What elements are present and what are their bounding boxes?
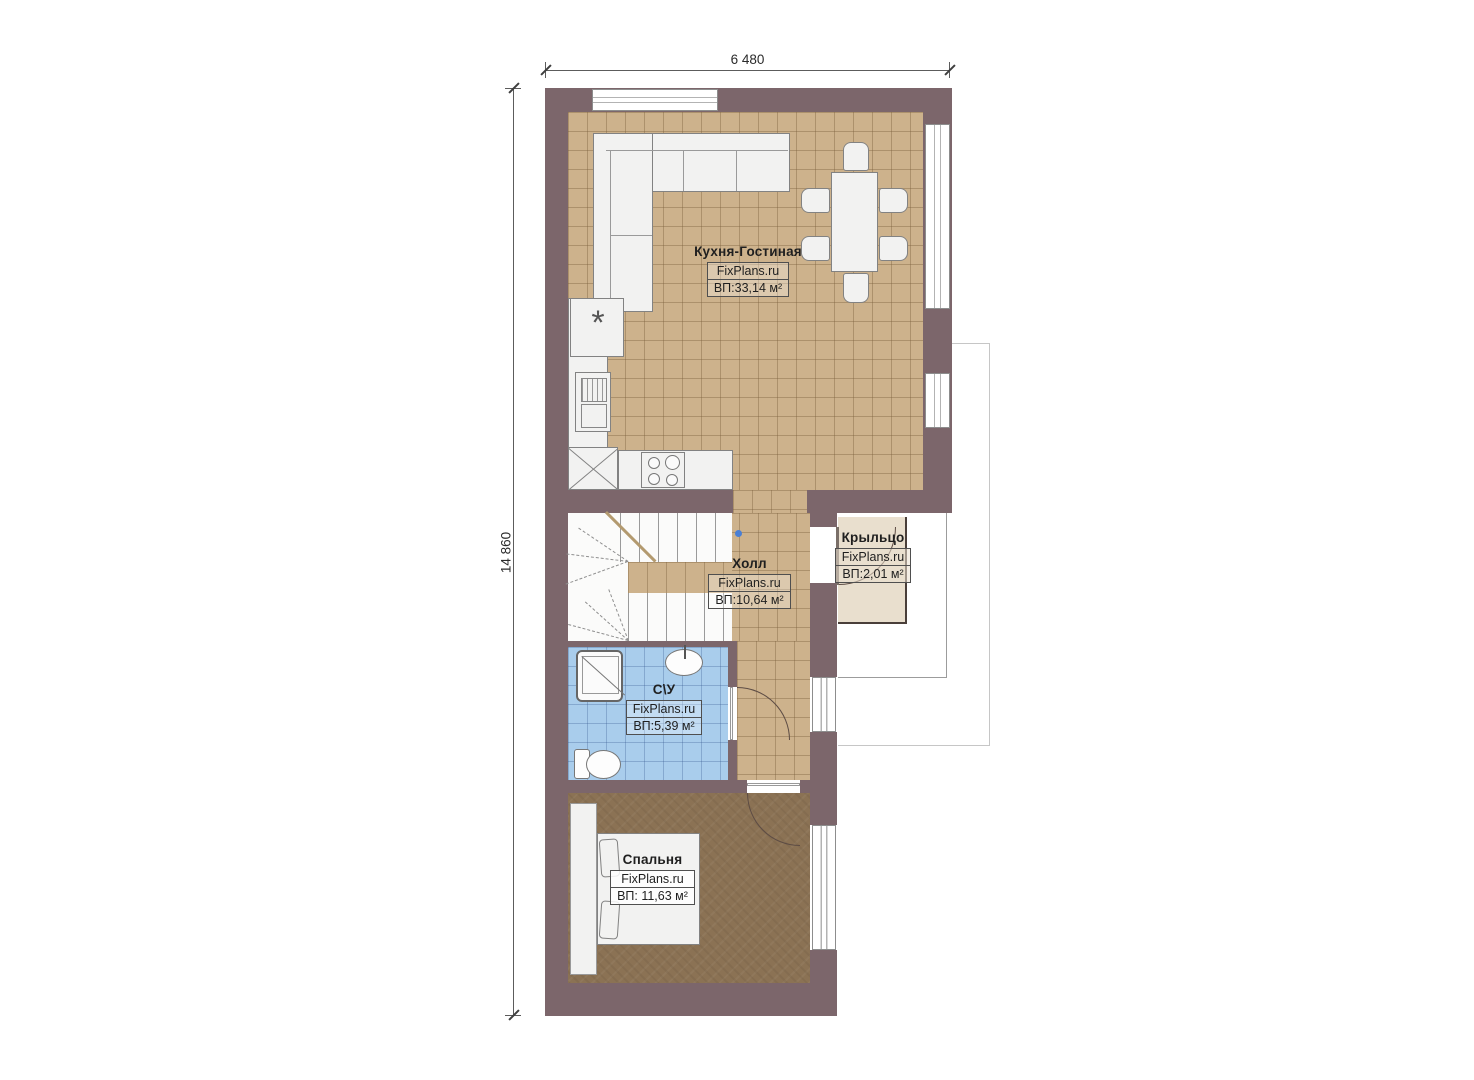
label-bathroom: С\У FixPlans.ru ВП:5,39 м² (608, 682, 720, 735)
sofa-seat-divider (683, 151, 684, 191)
sofa-seat-divider (736, 151, 737, 191)
sink-faucet-line (684, 645, 686, 659)
window-top-wall (592, 89, 718, 111)
terrace-outline-bottom (838, 745, 990, 746)
room-name: Спальня (600, 852, 705, 867)
room-brand: FixPlans.ru (611, 871, 694, 887)
room-info-box: FixPlans.ru ВП: 11,63 м² (610, 870, 695, 905)
terrace-outline-right (989, 343, 990, 746)
bathroom-door-leaf (730, 687, 733, 740)
floor-plan-canvas: * Кухня-Гостиная FixPlans.ru (0, 0, 1474, 1080)
wall-bedroom-top-1 (545, 780, 747, 793)
room-brand: FixPlans.ru (627, 701, 702, 717)
corner-cabinet (568, 447, 618, 490)
room-name: Холл (697, 556, 802, 571)
stove (641, 452, 685, 488)
room-brand: FixPlans.ru (709, 575, 789, 591)
wall-right-lower-2 (810, 583, 837, 677)
room-area: ВП:33,14 м² (708, 279, 788, 296)
wall-left (545, 88, 568, 1016)
sofa-seat-divider (611, 235, 652, 236)
stove-burner (666, 474, 678, 486)
dishwasher (575, 372, 611, 432)
bedroom-side-units (570, 803, 597, 975)
room-name: С\У (608, 682, 720, 697)
dishwasher-door (581, 404, 607, 428)
stair-winder-line (566, 561, 628, 585)
dishwasher-grill (581, 378, 607, 402)
label-bedroom: Спальня FixPlans.ru ВП: 11,63 м² (600, 852, 705, 905)
sofa-side-line (610, 150, 611, 305)
wall-bathroom-right-2 (728, 740, 737, 780)
room-brand: FixPlans.ru (708, 263, 788, 279)
marker-dot (735, 530, 742, 537)
sofa-back-line (606, 150, 788, 151)
sink-faucet-icon: * (583, 308, 613, 338)
room-name: Кухня-Гостиная (688, 244, 808, 259)
dining-table (831, 172, 878, 272)
bed-pillow (599, 900, 621, 939)
room-info-box: FixPlans.ru ВП:33,14 м² (707, 262, 789, 297)
wall-right-lower-3 (810, 732, 837, 825)
hall-kitchen-opening-floor (733, 490, 807, 513)
porch-steps-outline-bottom (838, 677, 947, 678)
label-porch: Крыльцо FixPlans.ru ВП:2,01 м² (823, 530, 923, 583)
room-area: ВП:2,01 м² (836, 565, 911, 582)
terrace-outline-top (952, 343, 990, 344)
dimension-line-top (545, 70, 950, 71)
room-area: ВП:5,39 м² (627, 717, 702, 734)
room-brand: FixPlans.ru (836, 549, 911, 565)
dining-chair-bottom (843, 273, 869, 303)
toilet-bowl (586, 750, 621, 779)
stove-burner (665, 455, 680, 470)
wall-bedroom-top-2 (800, 780, 810, 793)
porch-steps-outline-right (946, 513, 947, 678)
label-hall: Холл FixPlans.ru ВП:10,64 м² (697, 556, 802, 609)
wall-kitchen-bottom-right (807, 490, 952, 513)
room-area: ВП: 11,63 м² (611, 887, 694, 904)
window-kitchen-right-1 (925, 124, 950, 309)
label-kitchen-living: Кухня-Гостиная FixPlans.ru ВП:33,14 м² (688, 244, 808, 297)
wall-right-lower-1 (810, 513, 837, 527)
room-info-box: FixPlans.ru ВП:5,39 м² (626, 700, 703, 735)
wall-bathroom-right-1 (728, 647, 737, 687)
window-kitchen-right-2 (925, 373, 950, 428)
sofa-chaise (593, 133, 653, 312)
room-info-box: FixPlans.ru ВП:10,64 м² (708, 574, 790, 609)
stove-burner (648, 473, 660, 485)
stair-upper-flight (620, 513, 732, 562)
dimension-width-text: 6 480 (545, 52, 950, 67)
wall-kitchen-bottom-left (545, 490, 733, 513)
dining-chair-top (843, 142, 869, 171)
wall-bottom (545, 983, 837, 1016)
dining-chair-left-1 (801, 188, 830, 213)
bathroom-sink (665, 649, 703, 676)
room-area: ВП:10,64 м² (709, 591, 789, 608)
dimension-height-text: 14 860 (499, 513, 514, 593)
bedroom-door-leaf (747, 783, 800, 786)
dining-chair-right-2 (879, 236, 908, 261)
stove-burner (648, 457, 660, 469)
room-name: Крыльцо (823, 530, 923, 545)
room-info-box: FixPlans.ru ВП:2,01 м² (835, 548, 912, 583)
window-hall-right (812, 677, 836, 732)
window-bedroom-right (812, 825, 836, 950)
dining-chair-right-1 (879, 188, 908, 213)
